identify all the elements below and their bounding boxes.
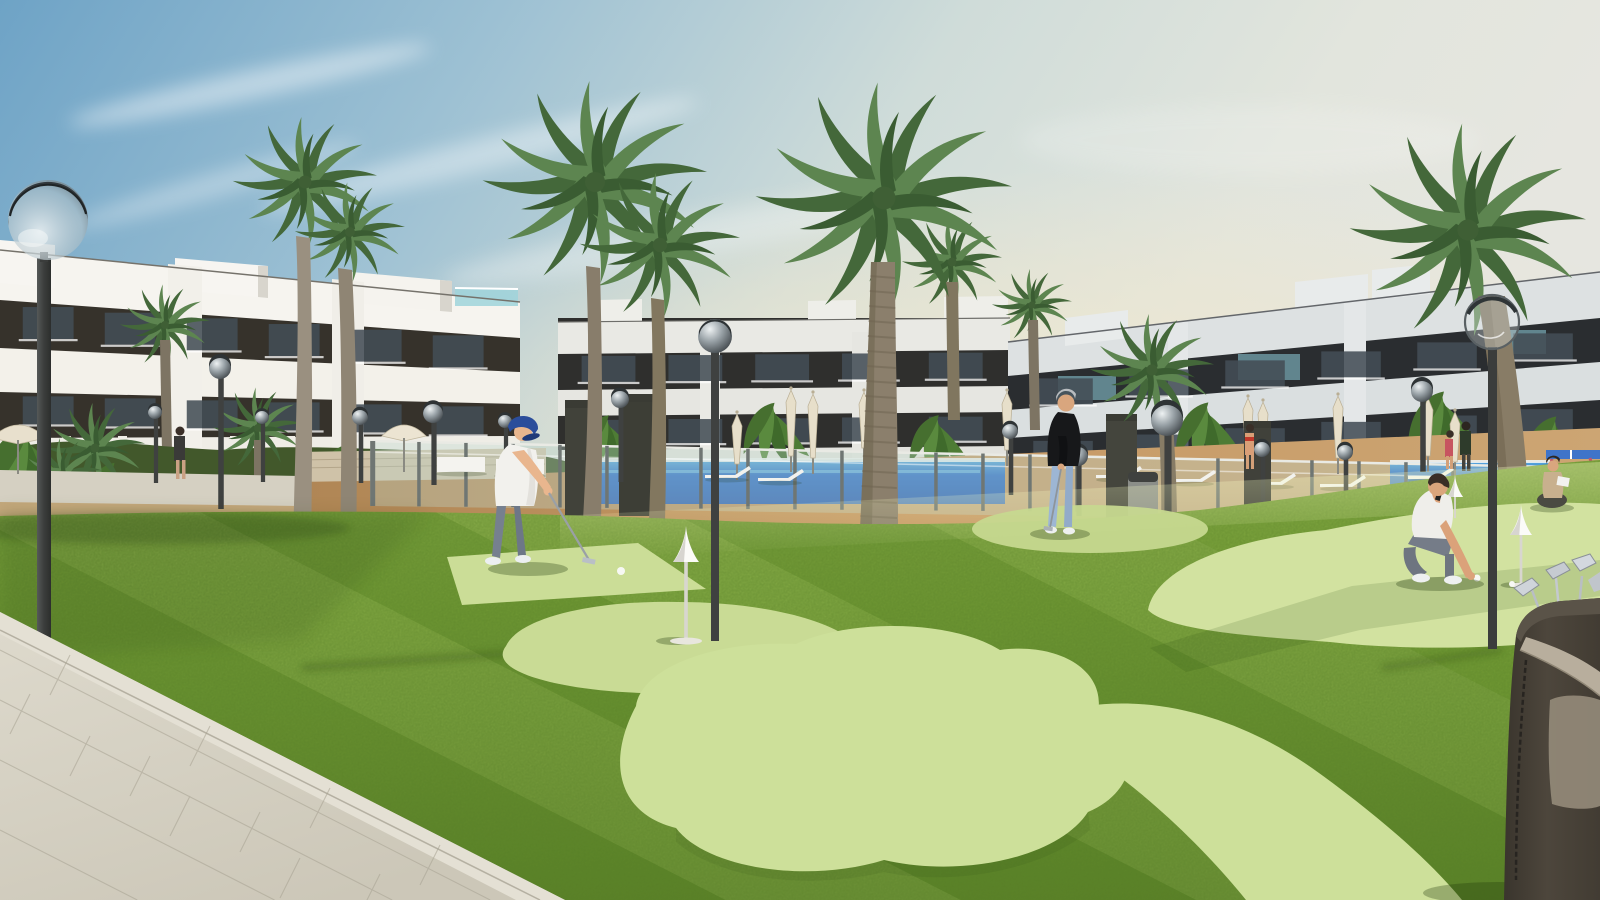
table-tennis-table xyxy=(1546,450,1600,459)
lamp-pole xyxy=(431,421,436,485)
bench xyxy=(437,457,485,472)
window xyxy=(1225,360,1285,386)
window xyxy=(1513,333,1573,359)
lamp-pole xyxy=(619,406,624,482)
fence-post xyxy=(840,451,844,510)
balcony-rail xyxy=(1221,386,1289,388)
fence-post xyxy=(746,449,750,509)
balcony-rail xyxy=(265,356,324,358)
balcony-rail xyxy=(1317,377,1385,379)
lamp-pole xyxy=(1420,400,1426,472)
window xyxy=(1321,351,1381,377)
fence-post xyxy=(605,446,609,508)
lamp-pole xyxy=(154,417,158,483)
balcony-rail xyxy=(183,350,242,352)
window xyxy=(187,400,238,428)
window xyxy=(1417,342,1477,368)
balcony-rail xyxy=(1413,368,1481,370)
lamp-pole xyxy=(359,423,364,483)
window xyxy=(755,354,809,380)
fence-post xyxy=(558,445,562,508)
fence-post xyxy=(370,441,375,506)
balcony-rail xyxy=(347,362,406,364)
balcony-rail xyxy=(101,426,160,428)
green-clover xyxy=(620,626,1129,871)
fence-post xyxy=(417,442,421,506)
green-pad-2 xyxy=(972,505,1208,553)
window xyxy=(351,330,402,362)
balcony-rail xyxy=(101,345,160,347)
window xyxy=(269,324,320,356)
lamp-pole xyxy=(261,422,265,482)
balcony-rail xyxy=(1509,359,1577,361)
render-scene xyxy=(0,0,1600,900)
fence-post xyxy=(699,448,703,509)
balcony-rail xyxy=(751,380,813,382)
fence-post xyxy=(793,450,797,510)
scene-svg xyxy=(0,0,1600,900)
window xyxy=(433,335,484,367)
lamp-pole xyxy=(1009,437,1014,495)
balcony-rail xyxy=(429,367,488,369)
lamp-pole xyxy=(218,377,224,509)
balcony-rail xyxy=(578,382,640,384)
